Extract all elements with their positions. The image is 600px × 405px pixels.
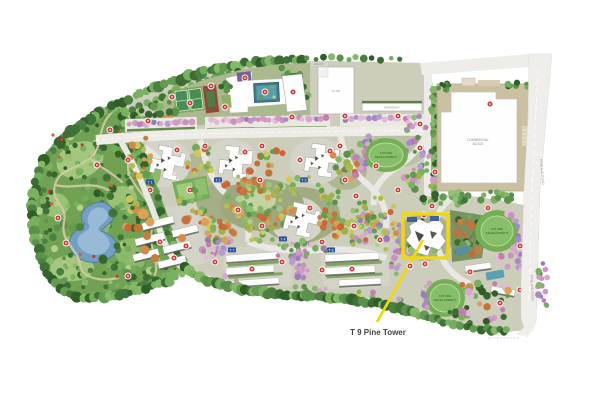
svg-text:DEVELOPMENT: DEVELOPMENT: [486, 231, 509, 235]
svg-text:T 7: T 7: [229, 249, 234, 253]
svg-text:DEVELOPMENT: DEVELOPMENT: [375, 155, 398, 159]
svg-text:T 9 Pine Tower: T 9 Pine Tower: [350, 328, 406, 337]
svg-text:p i n e a v e n u e: p i n e a v e n u e: [488, 335, 519, 340]
svg-text:T 4: T 4: [280, 238, 285, 242]
svg-text:DRIVEWAY: DRIVEWAY: [384, 106, 400, 110]
svg-text:T 1: T 1: [147, 181, 152, 185]
svg-text:CLUB: CLUB: [332, 89, 340, 93]
svg-text:T 3: T 3: [301, 179, 306, 183]
svg-text:DEVELOPMENT: DEVELOPMENT: [434, 298, 457, 302]
svg-text:T 8: T 8: [328, 249, 333, 253]
svg-text:AMENITY: AMENITY: [313, 62, 325, 66]
svg-text:T 2: T 2: [215, 179, 220, 183]
svg-text:BLOCK: BLOCK: [473, 142, 485, 146]
